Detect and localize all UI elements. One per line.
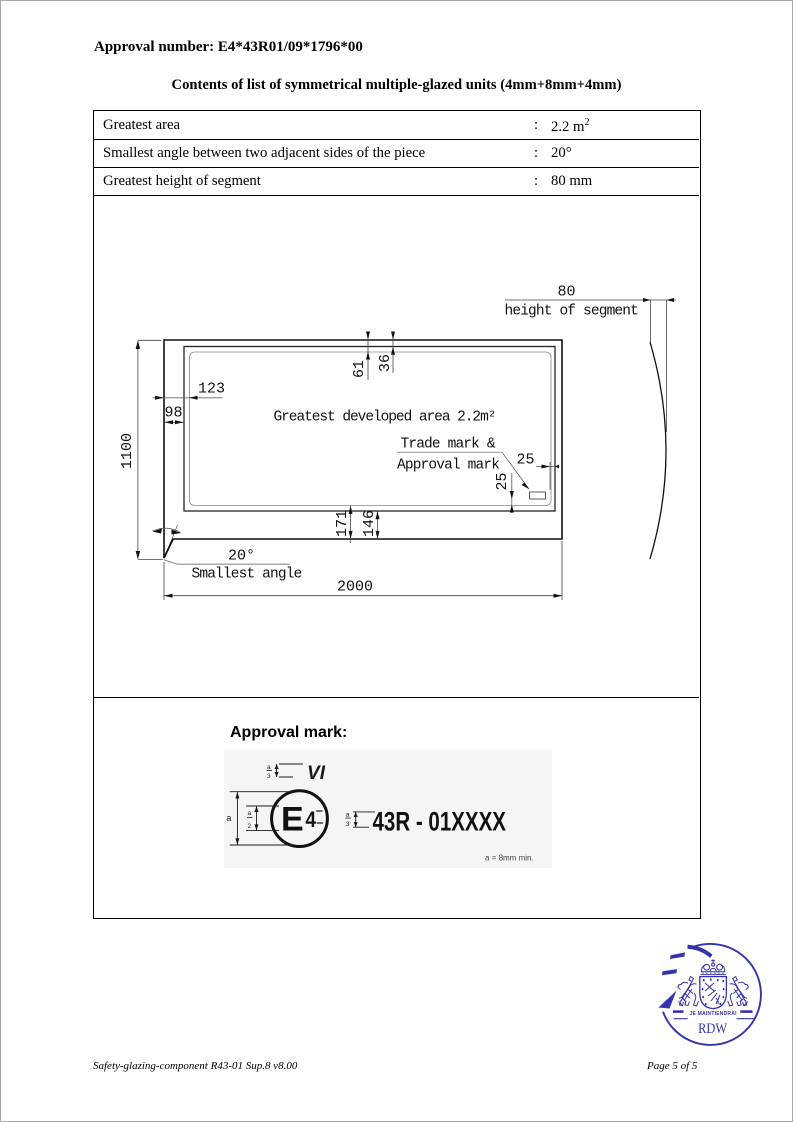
svg-text:a: a: [248, 810, 252, 817]
svg-text:E: E: [281, 800, 304, 838]
svg-text:43R - 01XXXX: 43R - 01XXXX: [373, 807, 507, 837]
svg-text:2: 2: [248, 823, 252, 830]
svg-text:a = 8mm min.: a = 8mm min.: [485, 854, 534, 863]
svg-text:VI: VI: [307, 763, 326, 784]
svg-text:3: 3: [346, 821, 350, 828]
svg-text:JE MAINTIENDRAI: JE MAINTIENDRAI: [690, 1011, 738, 1017]
svg-text:a: a: [226, 813, 231, 823]
svg-text:a: a: [267, 764, 271, 771]
svg-text:a: a: [346, 812, 350, 819]
svg-text:3: 3: [267, 773, 271, 780]
svg-text:4: 4: [306, 807, 317, 832]
svg-text:RDW: RDW: [698, 1021, 727, 1037]
